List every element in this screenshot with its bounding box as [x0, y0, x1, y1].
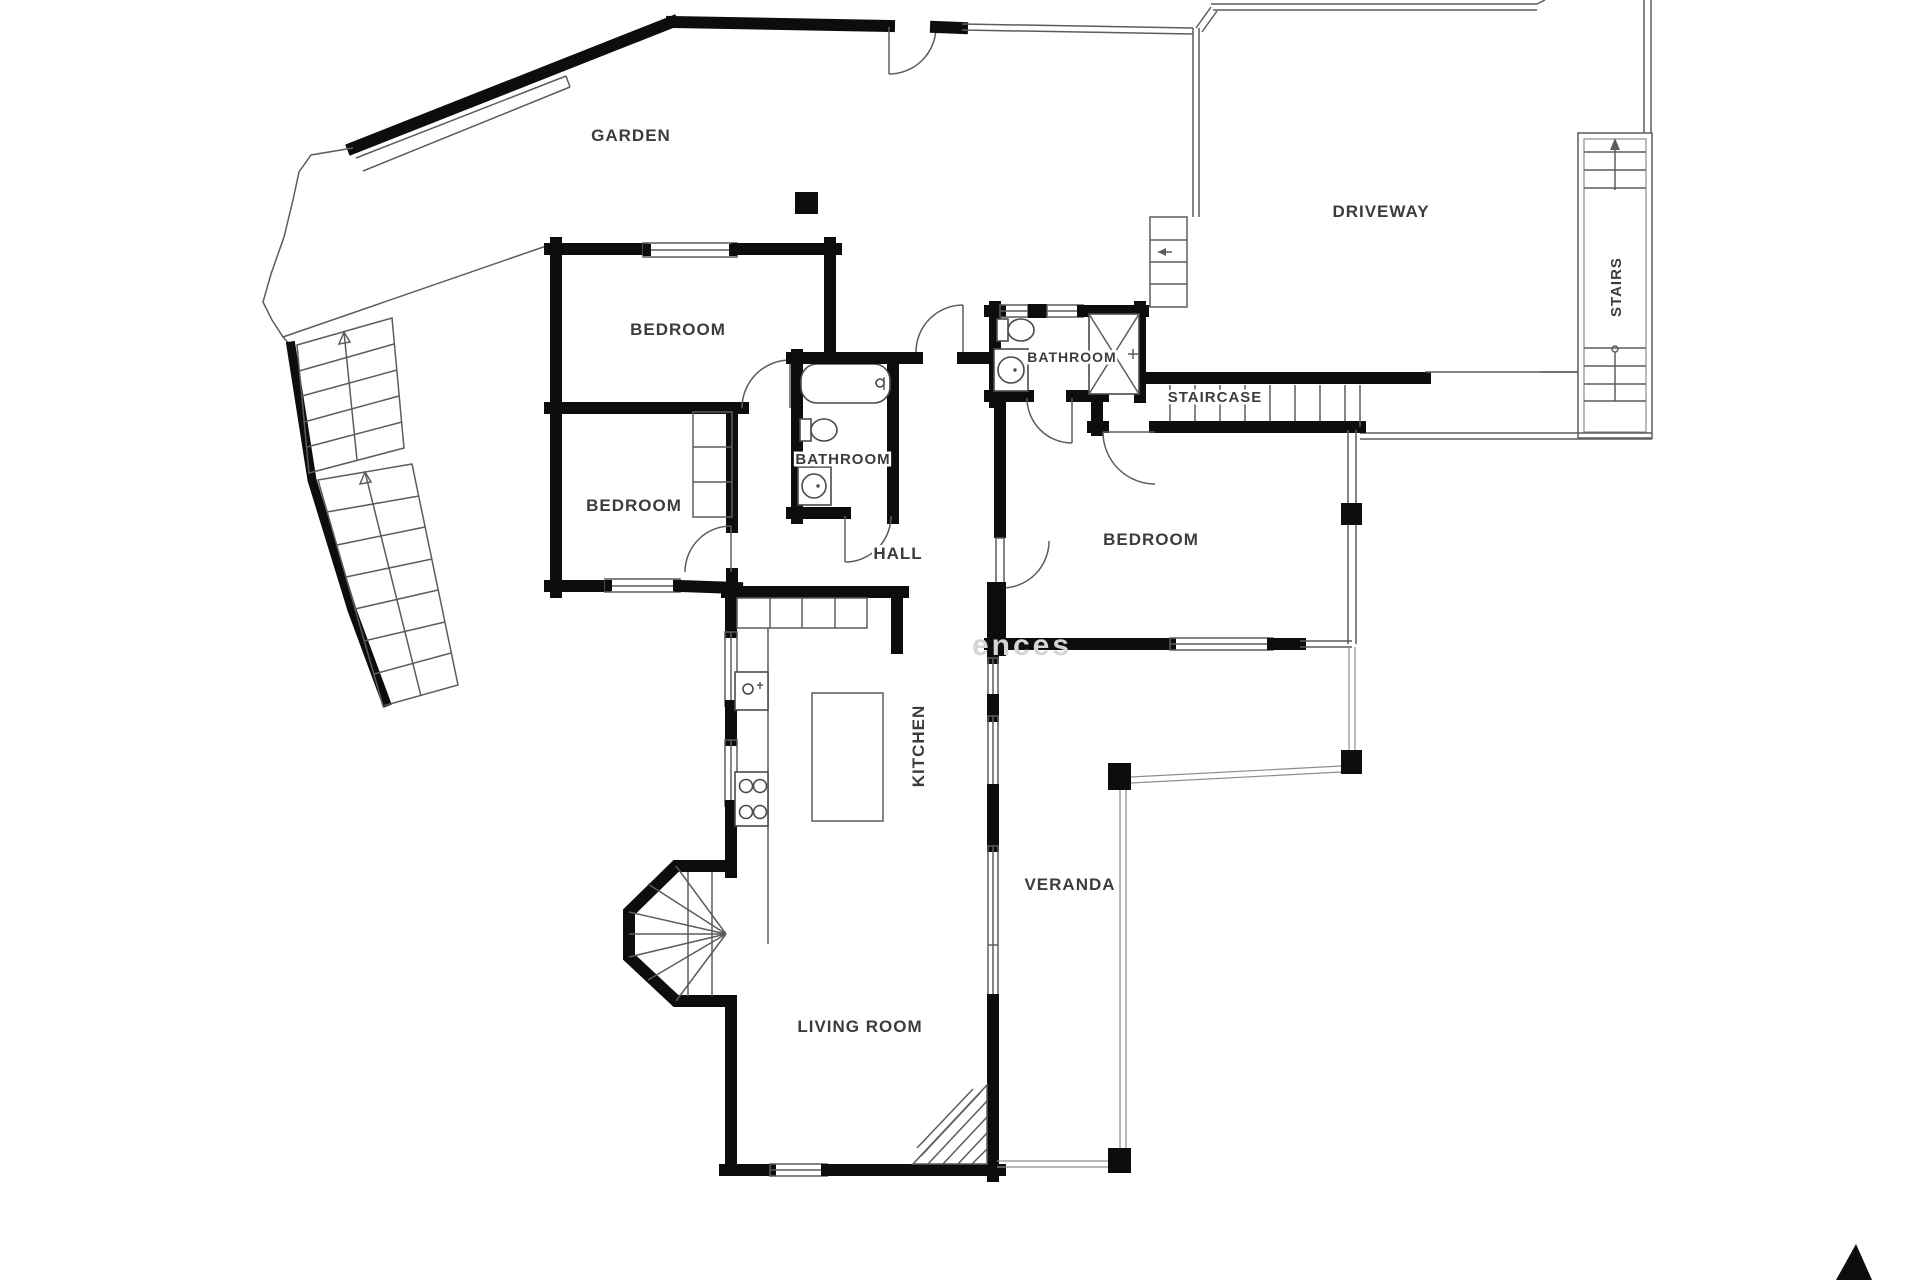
winder-stair — [629, 866, 726, 1001]
driveway-label: DRIVEWAY — [1332, 202, 1429, 221]
staircase-area: STAIRCASE — [1093, 372, 1578, 484]
front-door — [916, 305, 963, 352]
bedroom-1-label: BEDROOM — [630, 320, 726, 339]
hall-label: HALL — [873, 544, 922, 563]
toilet-main — [800, 419, 837, 441]
staircase-door — [1103, 432, 1155, 484]
kitchen-stove — [735, 772, 768, 826]
bathroom-main: BATHROOM — [792, 355, 893, 562]
garden-steps — [291, 318, 458, 706]
floor-plan-drawing: GARDEN DRIVEWAY — [0, 0, 1920, 1280]
veranda-column-ne — [1341, 750, 1362, 774]
bedroom-3: BEDROOM — [990, 402, 1362, 650]
veranda-label: VERANDA — [1024, 875, 1115, 894]
logo-triangle — [1836, 1244, 1872, 1280]
garden-column — [795, 192, 818, 214]
veranda-column-nw — [1108, 763, 1131, 790]
bathroom-top-windows — [1000, 304, 1083, 318]
bathroom-top: BATHROOM — [990, 304, 1143, 443]
bedroom-1-window — [643, 243, 737, 257]
bedroom-2-window — [605, 579, 680, 592]
floor-plan-page: GARDEN DRIVEWAY — [0, 0, 1920, 1280]
kitchen-island — [812, 693, 883, 821]
kitchen-label: KITCHEN — [909, 705, 928, 788]
bedroom-2: BEDROOM — [550, 408, 737, 592]
bedroom-2-label: BEDROOM — [586, 496, 682, 515]
veranda-column-sw — [1108, 1148, 1131, 1173]
corner-fireplace — [913, 1085, 987, 1164]
bedroom-3-label: BEDROOM — [1103, 530, 1199, 549]
bedroom-3-door — [996, 538, 1049, 588]
kitchen-area: KITCHEN — [725, 588, 928, 944]
garden-label: GARDEN — [591, 126, 671, 145]
garden-gate-door — [889, 27, 936, 74]
watermark: ences — [972, 629, 1072, 662]
driveway-steps — [1143, 217, 1187, 312]
bedroom-3-window-south — [1170, 638, 1273, 650]
living-window-south — [770, 1164, 827, 1176]
sink-top — [994, 349, 1028, 391]
bedroom-1-door — [742, 360, 790, 408]
living-room-area: LIVING ROOM — [629, 588, 1000, 1176]
bedroom-2-door — [685, 526, 731, 572]
stairs-label: STAIRS — [1608, 257, 1625, 317]
bathroom-top-label: BATHROOM — [1027, 349, 1116, 365]
kitchen-sink — [735, 672, 768, 710]
living-window-east-3 — [988, 846, 998, 1000]
bathtub — [801, 364, 890, 403]
sink-main — [798, 467, 831, 505]
staircase-label: STAIRCASE — [1168, 389, 1263, 406]
toilet-top — [997, 319, 1034, 341]
bedroom-3-window-east — [1341, 430, 1362, 644]
bathroom-main-label: BATHROOM — [795, 451, 890, 468]
living-room-label: LIVING ROOM — [797, 1017, 922, 1036]
living-window-east-1 — [988, 658, 998, 700]
veranda-area: VERANDA — [997, 647, 1362, 1173]
kitchen-counter — [737, 598, 867, 944]
driveway-area: DRIVEWAY — [1143, 28, 1430, 312]
living-window-east-2 — [988, 716, 998, 790]
bathroom-top-door — [1027, 398, 1072, 443]
